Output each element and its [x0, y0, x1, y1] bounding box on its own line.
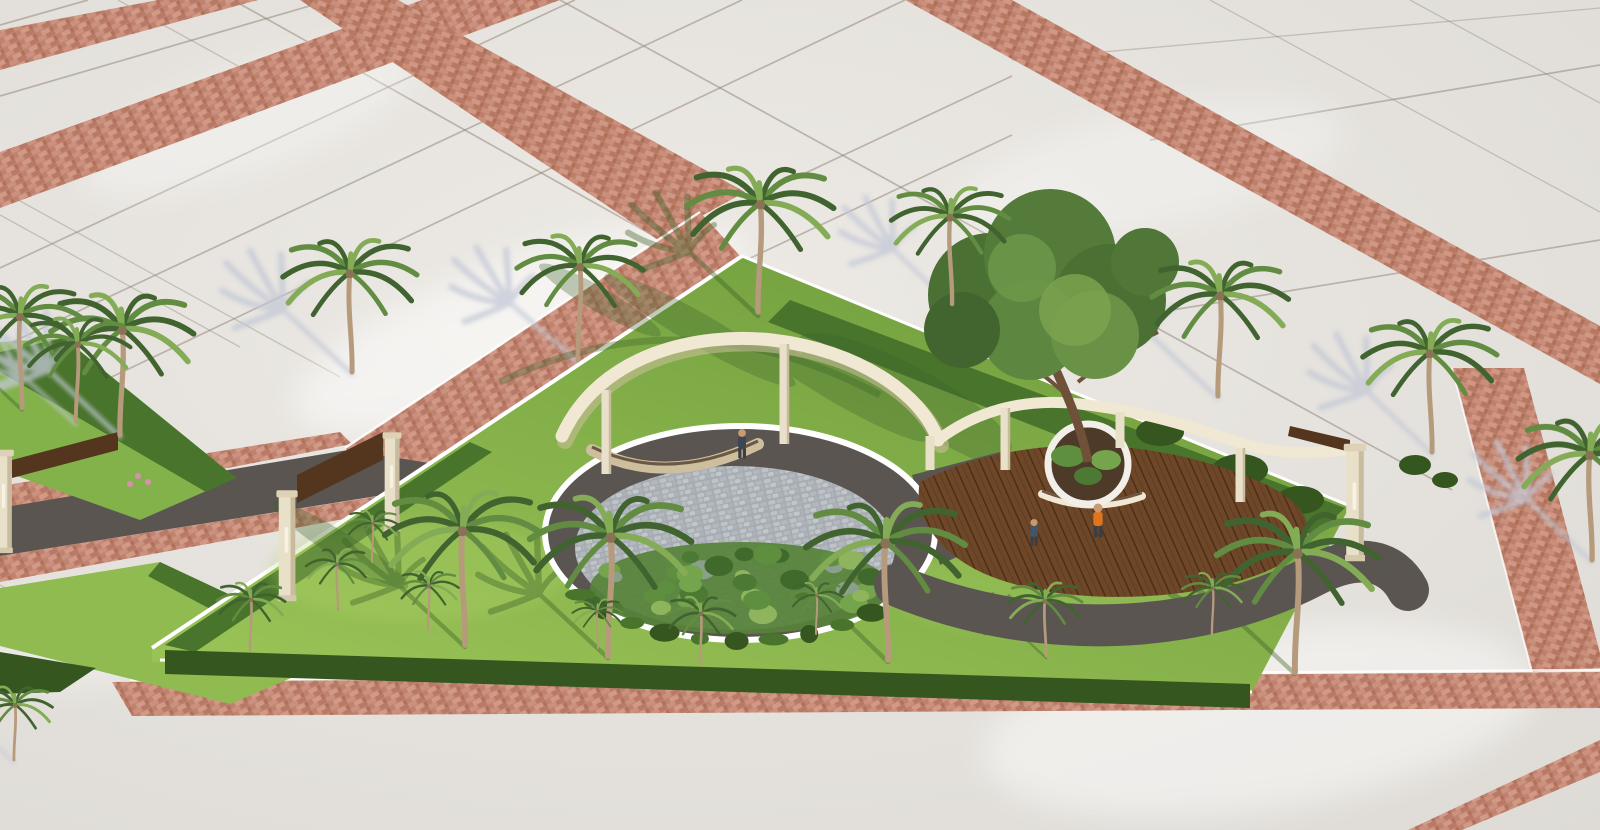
bed-plant	[657, 581, 675, 594]
landscape-render: Aerial 3D architectural rendering of a t…	[0, 0, 1600, 830]
bed-plant	[852, 590, 869, 602]
rim-bush	[565, 589, 595, 601]
screenshot-root: Aerial 3D architectural rendering of a t…	[0, 0, 1600, 830]
bed-plant	[753, 544, 782, 564]
flower	[127, 481, 133, 487]
bed-plant	[735, 548, 754, 562]
rim-bush	[759, 633, 789, 645]
rim-bush	[620, 617, 644, 629]
rim-bush	[725, 632, 749, 650]
bed-plant	[733, 574, 757, 591]
flower	[135, 473, 141, 479]
rim-bush	[830, 619, 854, 631]
rim-bush	[650, 624, 680, 642]
gate-pillar-b	[276, 490, 297, 601]
bed-plant	[704, 556, 733, 576]
bed-plant	[682, 551, 699, 563]
gate-pillar-c	[383, 432, 402, 531]
bed-plant	[743, 591, 771, 610]
rim-bush	[857, 604, 887, 622]
flower	[145, 479, 151, 485]
